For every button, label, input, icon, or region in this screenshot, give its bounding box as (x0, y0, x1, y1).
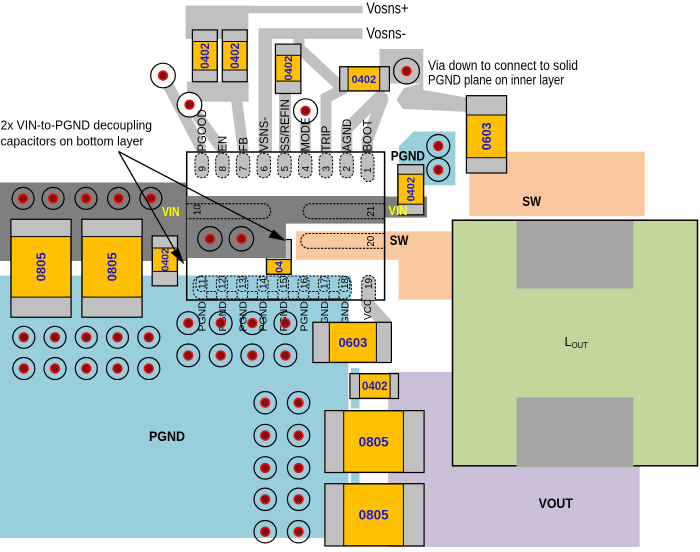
svg-text:capacitors on bottom layer: capacitors on bottom layer (1, 133, 145, 148)
svg-text:AGND: AGND (341, 119, 354, 152)
svg-text:21: 21 (366, 205, 377, 217)
svg-text:12: 12 (218, 277, 229, 289)
svg-text:19: 19 (364, 277, 375, 289)
svg-text:SW: SW (390, 232, 409, 248)
svg-text:0603: 0603 (338, 335, 367, 350)
svg-text:FB: FB (237, 137, 250, 152)
svg-text:6: 6 (259, 166, 270, 172)
svg-text:14: 14 (259, 277, 270, 289)
svg-text:4: 4 (301, 166, 312, 172)
svg-text:0805: 0805 (359, 508, 390, 523)
svg-text:3: 3 (322, 166, 333, 172)
svg-text:04: 04 (274, 261, 286, 273)
svg-text:5: 5 (280, 166, 291, 172)
svg-text:0402: 0402 (199, 43, 212, 69)
svg-text:7: 7 (239, 166, 250, 172)
svg-text:VOUT: VOUT (539, 495, 574, 511)
svg-text:VIN: VIN (162, 204, 180, 219)
svg-text:15: 15 (279, 277, 290, 289)
svg-text:0402: 0402 (352, 74, 376, 86)
svg-text:Vosns-: Vosns- (366, 26, 406, 43)
svg-text:PGND: PGND (391, 149, 426, 164)
svg-text:Via down to connect to solid: Via down to connect to solid (428, 58, 578, 73)
svg-text:VIN: VIN (388, 203, 407, 218)
svg-text:16: 16 (299, 277, 310, 289)
svg-text:SS/REFIN: SS/REFIN (278, 99, 291, 151)
svg-text:TRIP: TRIP (320, 126, 333, 152)
svg-text:2x VIN-to-PGND decoupling: 2x VIN-to-PGND decoupling (1, 118, 153, 133)
svg-text:0603: 0603 (480, 122, 494, 150)
svg-text:2: 2 (342, 166, 353, 172)
svg-text:0402: 0402 (406, 177, 418, 201)
svg-text:VCC: VCC (363, 299, 374, 320)
svg-text:Vosns+: Vosns+ (366, 1, 408, 18)
svg-text:0805: 0805 (359, 434, 390, 449)
svg-text:VSNS-: VSNS- (258, 117, 271, 152)
svg-text:17: 17 (320, 277, 331, 289)
svg-text:0402: 0402 (362, 381, 388, 393)
svg-text:MODE: MODE (299, 117, 312, 151)
svg-text:18: 18 (340, 277, 351, 289)
svg-text:0805: 0805 (34, 252, 49, 281)
svg-text:9: 9 (197, 166, 208, 172)
svg-text:0805: 0805 (105, 252, 120, 281)
svg-text:1: 1 (363, 167, 374, 173)
svg-text:PGOOD: PGOOD (196, 109, 209, 151)
svg-text:20: 20 (366, 235, 377, 247)
svg-text:0402: 0402 (229, 43, 242, 69)
svg-text:EN: EN (216, 136, 229, 152)
svg-text:BOOT: BOOT (361, 119, 374, 151)
svg-text:0402: 0402 (283, 56, 295, 81)
svg-text:10: 10 (193, 204, 204, 216)
svg-text:8: 8 (218, 166, 229, 172)
svg-text:13: 13 (238, 277, 249, 289)
svg-text:PGND plane on inner layer: PGND plane on inner layer (428, 73, 564, 88)
svg-text:PGND: PGND (149, 428, 185, 444)
svg-text:11: 11 (197, 278, 208, 289)
svg-text:0402: 0402 (160, 248, 172, 272)
svg-text:PGND: PGND (258, 301, 270, 332)
svg-text:PGND: PGND (299, 301, 311, 332)
svg-text:PGND: PGND (197, 301, 209, 332)
svg-text:SW: SW (522, 193, 541, 209)
